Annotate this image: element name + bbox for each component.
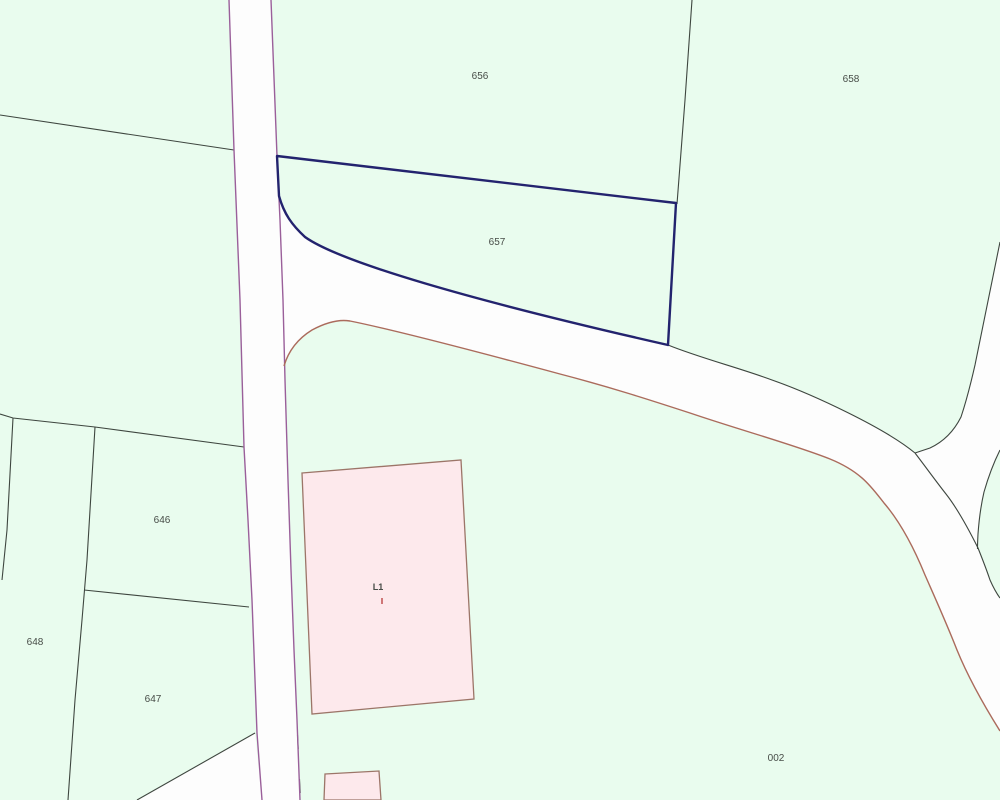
svg-text:656: 656 bbox=[472, 71, 489, 82]
svg-text:647: 647 bbox=[145, 694, 162, 705]
svg-text:648: 648 bbox=[27, 637, 44, 648]
svg-text:657: 657 bbox=[489, 237, 506, 248]
svg-text:646: 646 bbox=[154, 515, 171, 526]
svg-text:658: 658 bbox=[843, 74, 860, 85]
svg-text:002: 002 bbox=[768, 753, 785, 764]
svg-text:L1: L1 bbox=[373, 582, 384, 592]
